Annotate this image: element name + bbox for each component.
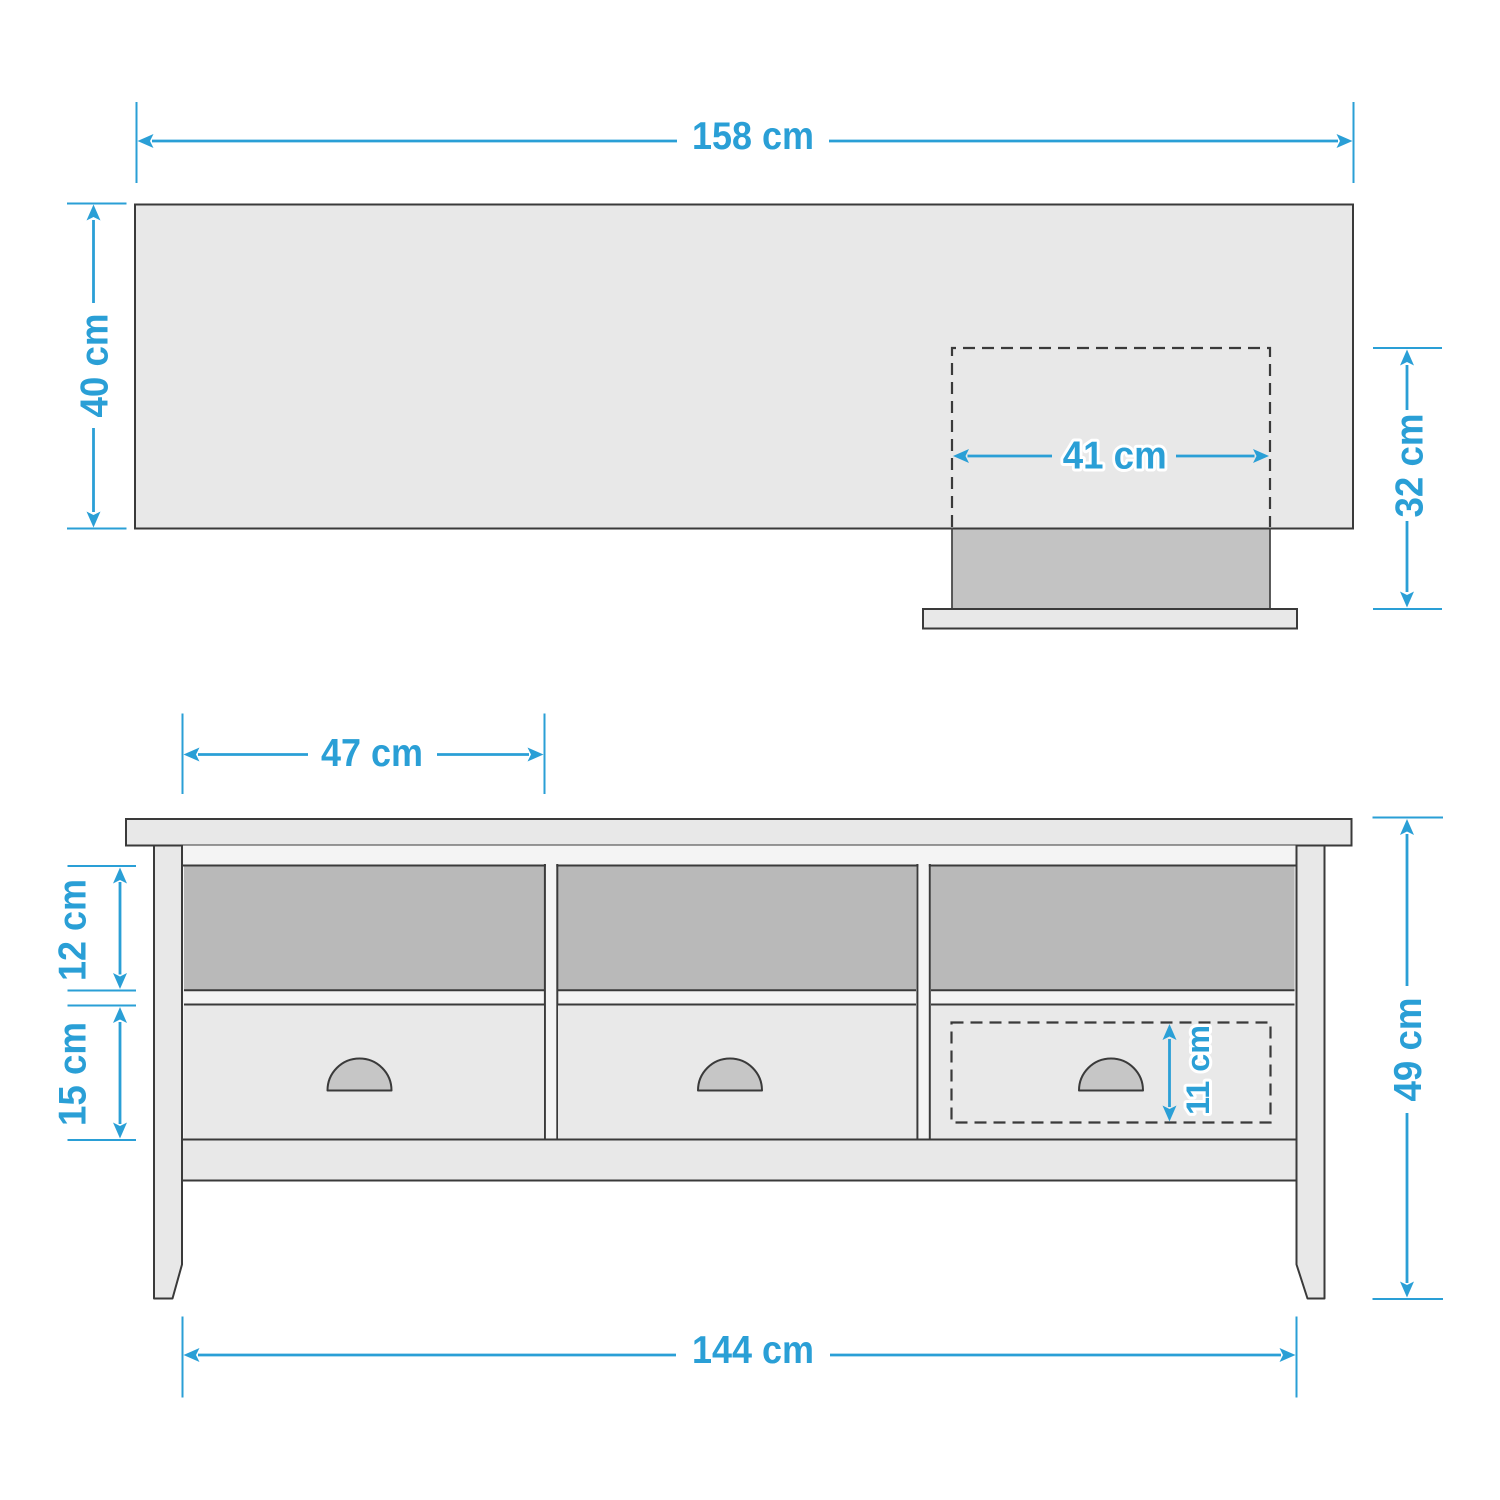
svg-text:47 cm: 47 cm [321,732,423,775]
svg-text:40 cm: 40 cm [73,314,116,418]
svg-text:32 cm: 32 cm [1388,414,1431,518]
svg-text:15 cm: 15 cm [51,1022,94,1126]
svg-text:11 cm: 11 cm [1180,1025,1216,1115]
svg-text:12 cm: 12 cm [51,879,94,981]
svg-text:144 cm: 144 cm [692,1329,814,1372]
svg-text:49 cm: 49 cm [1387,998,1430,1102]
svg-text:41 cm: 41 cm [1063,435,1167,478]
svg-text:158 cm: 158 cm [692,115,814,158]
